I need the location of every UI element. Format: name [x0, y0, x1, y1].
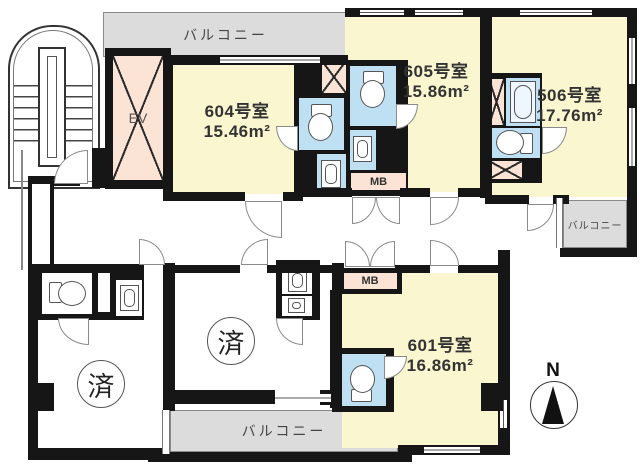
shaft-icon [28, 180, 54, 268]
exterior-line [21, 150, 23, 270]
door-601-entry-right [370, 241, 395, 267]
door-right-balcony [527, 204, 554, 231]
pillar [481, 383, 503, 411]
toilet-icon [49, 279, 87, 307]
wall [167, 390, 275, 404]
door-left-wc [58, 318, 89, 345]
wall [163, 263, 175, 411]
door-601-room [430, 240, 459, 266]
sink-icon [321, 160, 341, 188]
door-506-entry [430, 197, 459, 225]
balcony-edge [162, 410, 170, 454]
sold-badge-center: 済 [207, 317, 255, 365]
window-icon [629, 38, 635, 84]
wall [92, 148, 108, 188]
sold-left-text: 済 [88, 365, 115, 404]
sink-icon [353, 136, 372, 162]
door-604-entry [245, 201, 282, 238]
wall [267, 265, 333, 273]
toilet-icon [495, 129, 533, 157]
wall [485, 195, 529, 204]
wall [148, 452, 412, 462]
compass-north-label: N [528, 360, 578, 382]
room-601-area: 16.86m² [407, 356, 474, 376]
wall [28, 266, 38, 460]
room-604-area: 15.46m² [204, 122, 271, 142]
stair-newel [38, 47, 66, 167]
toilet-icon [307, 104, 335, 142]
meter-box-lower: MB [343, 273, 397, 289]
window-icon [424, 447, 480, 453]
window-icon [520, 10, 592, 15]
room-506-number: 506号室 [537, 86, 602, 106]
door-601-entry-left [345, 241, 370, 267]
door-center-wc [276, 318, 303, 345]
compass: N [528, 360, 578, 450]
stair-newel-slot [47, 56, 57, 158]
wall [395, 265, 430, 273]
label-room-604: 604号室 15.46m² [177, 100, 297, 144]
wall [28, 265, 140, 273]
door-left-room-entry [139, 239, 165, 265]
window-icon [275, 394, 331, 402]
door-605-entry-left [352, 197, 376, 224]
wall [170, 265, 240, 273]
room-605-area: 15.86m² [403, 82, 470, 102]
wall [332, 263, 344, 293]
sink-icon [120, 285, 139, 311]
duct-shaft-icon [94, 268, 114, 316]
wall [560, 248, 637, 257]
wall [296, 188, 352, 197]
room-605-number: 605号室 [404, 62, 469, 82]
wall [163, 192, 245, 201]
wall [458, 188, 485, 197]
wall [163, 55, 173, 195]
pipe-shaft-icon [489, 161, 522, 179]
balcony-right-label: バルコニー [563, 200, 627, 248]
room-601-number: 601号室 [408, 336, 473, 356]
balcony-top-label: バルコニー [103, 12, 348, 57]
wall [400, 188, 430, 197]
window-icon [220, 57, 320, 63]
balcony-edge [556, 198, 563, 248]
label-room-601: 601号室 16.86m² [380, 334, 500, 378]
meter-box-upper-label: MB [370, 176, 387, 188]
wall [330, 290, 342, 408]
label-room-506: 506号室 17.76m² [512, 84, 627, 128]
window-icon [629, 108, 635, 166]
room-506-area: 17.76m² [536, 106, 603, 126]
window-icon [415, 10, 463, 15]
wall [28, 383, 54, 411]
meter-box-lower-label: MB [361, 275, 378, 287]
door-center-room-entry [241, 239, 268, 265]
toilet-icon [348, 364, 376, 402]
pipe-shaft-icon [322, 61, 346, 93]
window-icon [360, 10, 404, 15]
sold-badge-left: 済 [77, 360, 125, 408]
wall [105, 180, 171, 189]
balcony-bottom-label: バルコニー [170, 410, 398, 452]
fixture-icon [288, 298, 305, 313]
label-room-605: 605号室 15.86m² [382, 60, 490, 104]
door-605-entry-right [376, 197, 400, 224]
meter-box-upper: MB [351, 173, 406, 190]
elevator-label: EV [113, 110, 163, 126]
floor-plan: MB MB EV [0, 0, 640, 468]
sold-center-text: 済 [218, 322, 245, 361]
room-604-number: 604号室 [205, 102, 270, 122]
